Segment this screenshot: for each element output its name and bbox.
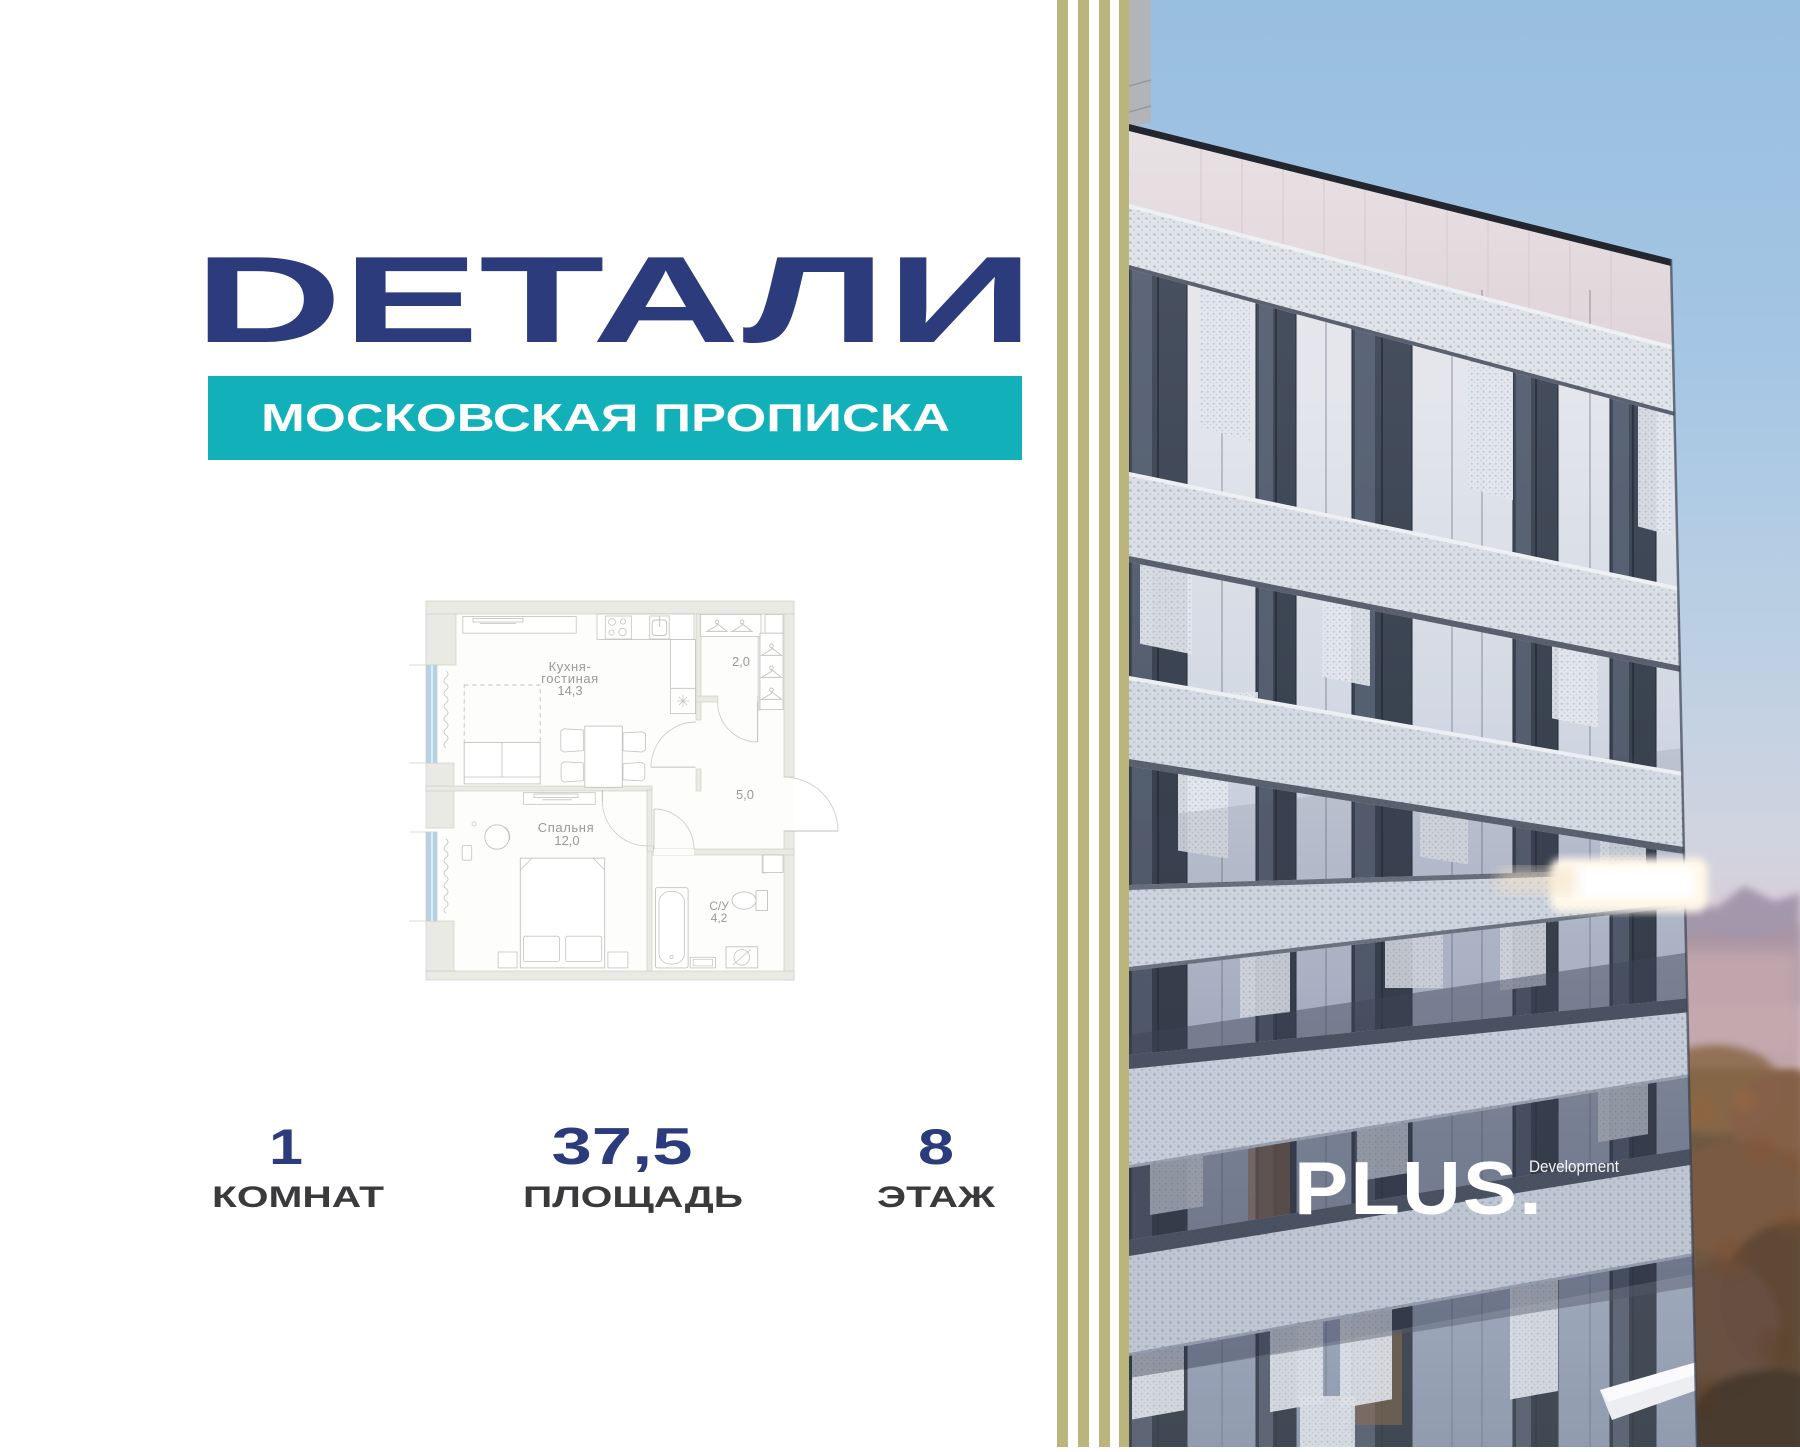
svg-text:37,5: 37,5 <box>552 1118 693 1176</box>
svg-text:ПЛОЩАДЬ: ПЛОЩАДЬ <box>523 1181 743 1214</box>
svg-text:ЭТАЖ: ЭТАЖ <box>877 1181 996 1214</box>
svg-text:2,0: 2,0 <box>732 654 750 669</box>
svg-text:1: 1 <box>269 1119 303 1175</box>
svg-text:14,3: 14,3 <box>557 683 582 698</box>
svg-text:5,0: 5,0 <box>736 787 754 802</box>
svg-text:КОМНАТ: КОМНАТ <box>212 1181 384 1214</box>
svg-text:Development: Development <box>1529 1157 1619 1176</box>
svg-text:МОСКОВСКАЯ ПРОПИСКА: МОСКОВСКАЯ ПРОПИСКА <box>261 397 950 440</box>
svg-text:8: 8 <box>918 1119 954 1175</box>
svg-text:12,0: 12,0 <box>554 833 579 848</box>
svg-text:DЕТАЛИ: DЕТАЛИ <box>194 232 1034 369</box>
svg-text:PLUS.: PLUS. <box>1294 1146 1544 1230</box>
svg-text:4,2: 4,2 <box>711 911 728 925</box>
